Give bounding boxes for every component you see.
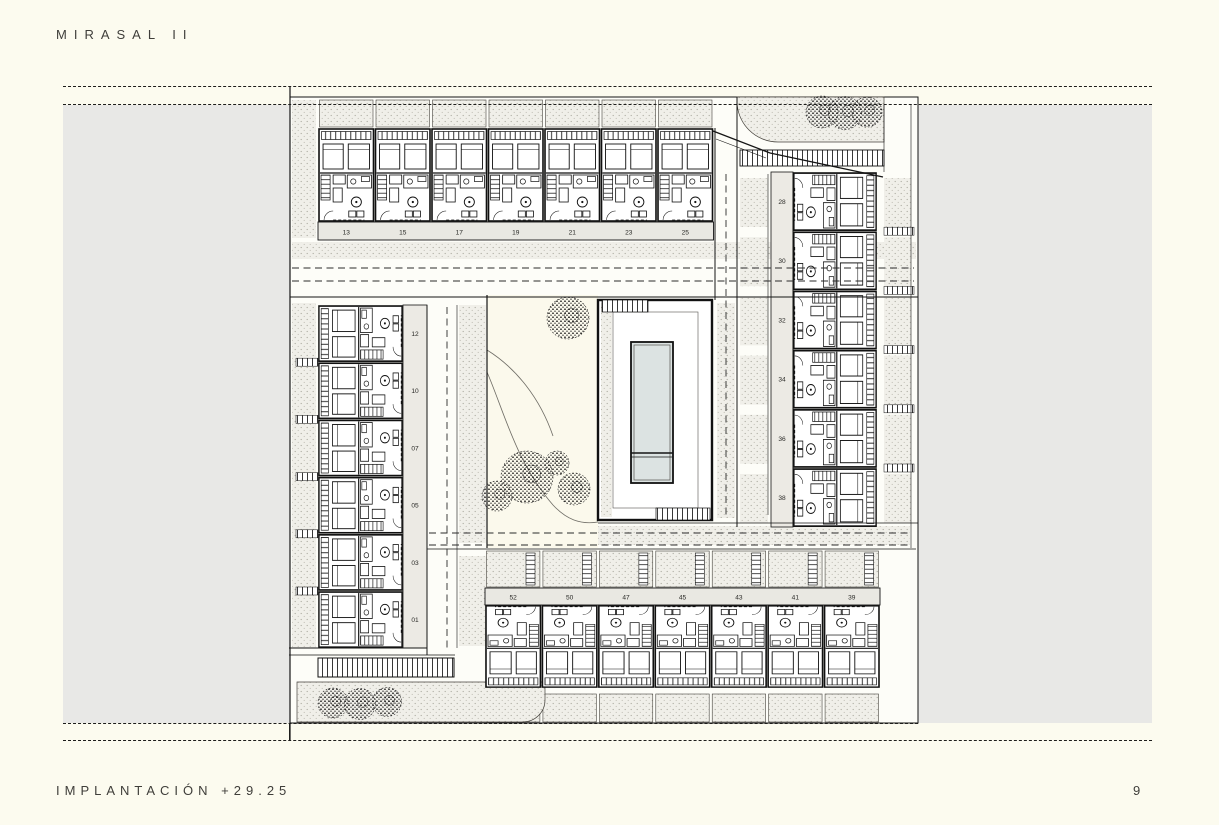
unit-number-label: 05 xyxy=(411,503,419,510)
housing-unit xyxy=(376,129,430,221)
pergola-hatch xyxy=(752,553,761,585)
unit-number-label: 39 xyxy=(848,595,856,602)
housing-unit xyxy=(602,129,656,221)
unit-number-label: 10 xyxy=(411,388,419,395)
top-row-block xyxy=(319,129,712,221)
unit-number-label: 07 xyxy=(411,445,419,452)
housing-unit xyxy=(432,129,486,221)
pergola-hatch xyxy=(695,553,704,585)
housing-unit xyxy=(658,129,712,221)
pergola-hatch xyxy=(602,300,648,312)
housing-unit xyxy=(319,306,402,361)
pergola-hatch xyxy=(808,553,817,585)
housing-unit xyxy=(599,606,653,687)
gravel-patch xyxy=(740,356,768,405)
unit-number-label: 30 xyxy=(778,258,786,265)
pergola-hatch xyxy=(526,553,535,585)
unit-number-label: 19 xyxy=(512,230,520,237)
housing-unit xyxy=(486,606,540,687)
gravel-patch xyxy=(740,237,768,286)
tree-group-bottom-left xyxy=(318,688,402,720)
boundary-dashed-line xyxy=(63,723,918,724)
unit-number-label: 25 xyxy=(682,230,690,237)
tree-group-top-right xyxy=(806,96,882,130)
pergola-hatch xyxy=(865,553,874,585)
unit-number-label: 45 xyxy=(679,595,687,602)
gravel-patch xyxy=(599,694,652,722)
unit-number-label: 15 xyxy=(399,230,407,237)
unit-number-label: 38 xyxy=(778,495,786,502)
gravel-patch xyxy=(884,356,911,405)
gravel-patch xyxy=(459,305,486,543)
housing-unit xyxy=(794,351,876,408)
gravel-patch xyxy=(601,303,612,517)
unit-number-label: 43 xyxy=(735,595,743,602)
gravel-patch xyxy=(884,237,911,286)
gravel-patch xyxy=(543,694,596,722)
pergola-hatch xyxy=(884,464,914,472)
tree-icon xyxy=(558,473,590,505)
site-plan-drawing: 1315171921232552504745434139121007050301… xyxy=(289,84,919,742)
housing-unit xyxy=(319,478,402,533)
bottom-row-block xyxy=(486,606,879,687)
pergola-hatch xyxy=(656,508,710,520)
pergola-hatch xyxy=(884,346,914,354)
unit-number-label: 17 xyxy=(456,230,464,237)
unit-number-label: 23 xyxy=(625,230,633,237)
drawing-caption: IMPLANTACIÓN +29.25 xyxy=(56,783,291,798)
tree-icon xyxy=(373,688,402,717)
document-page: 1315171921232552504745434139121007050301… xyxy=(0,0,1219,825)
tree-icon xyxy=(545,451,569,475)
gravel-patch xyxy=(740,474,768,523)
unit-number-label: 28 xyxy=(778,199,786,206)
unit-number-label: 34 xyxy=(778,377,786,384)
housing-unit xyxy=(794,173,876,230)
unit-number-label: 52 xyxy=(510,595,518,602)
pergola-hatch xyxy=(884,227,914,235)
gravel-patch xyxy=(884,474,911,523)
gravel-patch xyxy=(656,694,709,722)
pool-deck xyxy=(598,300,712,520)
housing-unit xyxy=(794,410,876,467)
unit-number-label: 01 xyxy=(411,617,419,624)
gravel-patch xyxy=(712,694,765,722)
housing-unit xyxy=(794,469,876,526)
unit-number-label: 03 xyxy=(411,560,419,567)
gravel-patch xyxy=(884,415,911,464)
tree-icon xyxy=(547,297,589,339)
tree-icon xyxy=(852,97,882,127)
page-title: MIRASAL II xyxy=(56,27,193,42)
housing-unit xyxy=(768,606,822,687)
site-plan: 1315171921232552504745434139121007050301… xyxy=(289,84,919,742)
unit-number-label: 50 xyxy=(566,595,574,602)
gravel-patch xyxy=(740,415,768,464)
pergola-hatch xyxy=(740,150,884,166)
pergola-hatch xyxy=(296,473,318,481)
housing-unit xyxy=(319,129,373,221)
pergola-hatch xyxy=(318,658,454,677)
pergola-hatch xyxy=(296,530,318,538)
housing-unit xyxy=(319,592,402,647)
gravel-patch xyxy=(884,296,911,345)
gravel-patch xyxy=(740,178,768,227)
boundary-line xyxy=(289,723,290,740)
unit-number-label: 12 xyxy=(411,331,419,338)
pergola-hatch xyxy=(582,553,591,585)
housing-unit xyxy=(825,606,879,687)
gravel-patch xyxy=(884,178,911,227)
swimming-pool xyxy=(631,342,673,483)
housing-unit xyxy=(545,129,599,221)
unit-number-label: 41 xyxy=(792,595,800,602)
gravel-patch xyxy=(825,694,878,722)
housing-unit xyxy=(712,606,766,687)
housing-unit xyxy=(319,535,402,590)
site-margin-left xyxy=(63,105,290,723)
housing-unit xyxy=(542,606,596,687)
gravel-patch xyxy=(769,694,822,722)
boundary-dashed-line xyxy=(63,104,1152,105)
site-margin-right xyxy=(918,105,1152,723)
unit-number-label: 47 xyxy=(622,595,630,602)
tree-icon xyxy=(482,481,512,511)
pergola-hatch xyxy=(296,587,318,595)
boundary-dashed-line xyxy=(63,740,1152,741)
gravel-patch xyxy=(292,100,316,238)
unit-number-label: 32 xyxy=(778,317,786,324)
pergola-hatch xyxy=(296,358,318,366)
unit-number-label: 36 xyxy=(778,436,786,443)
gravel-patch xyxy=(459,556,487,646)
boundary-dashed-line xyxy=(63,86,1152,87)
housing-unit xyxy=(655,606,709,687)
pergola-hatch xyxy=(296,415,318,423)
gravel-patch xyxy=(740,296,768,345)
housing-unit xyxy=(794,291,876,348)
housing-unit xyxy=(319,363,402,418)
tree-icon xyxy=(345,689,376,720)
unit-number-label: 13 xyxy=(343,230,351,237)
housing-unit xyxy=(489,129,543,221)
pergola-hatch xyxy=(884,286,914,294)
page-number: 9 xyxy=(1133,783,1141,798)
pergola-hatch xyxy=(639,553,648,585)
pergola-hatch xyxy=(884,405,914,413)
tree-icon xyxy=(318,688,348,718)
unit-number-label: 21 xyxy=(569,230,577,237)
housing-unit xyxy=(319,420,402,475)
